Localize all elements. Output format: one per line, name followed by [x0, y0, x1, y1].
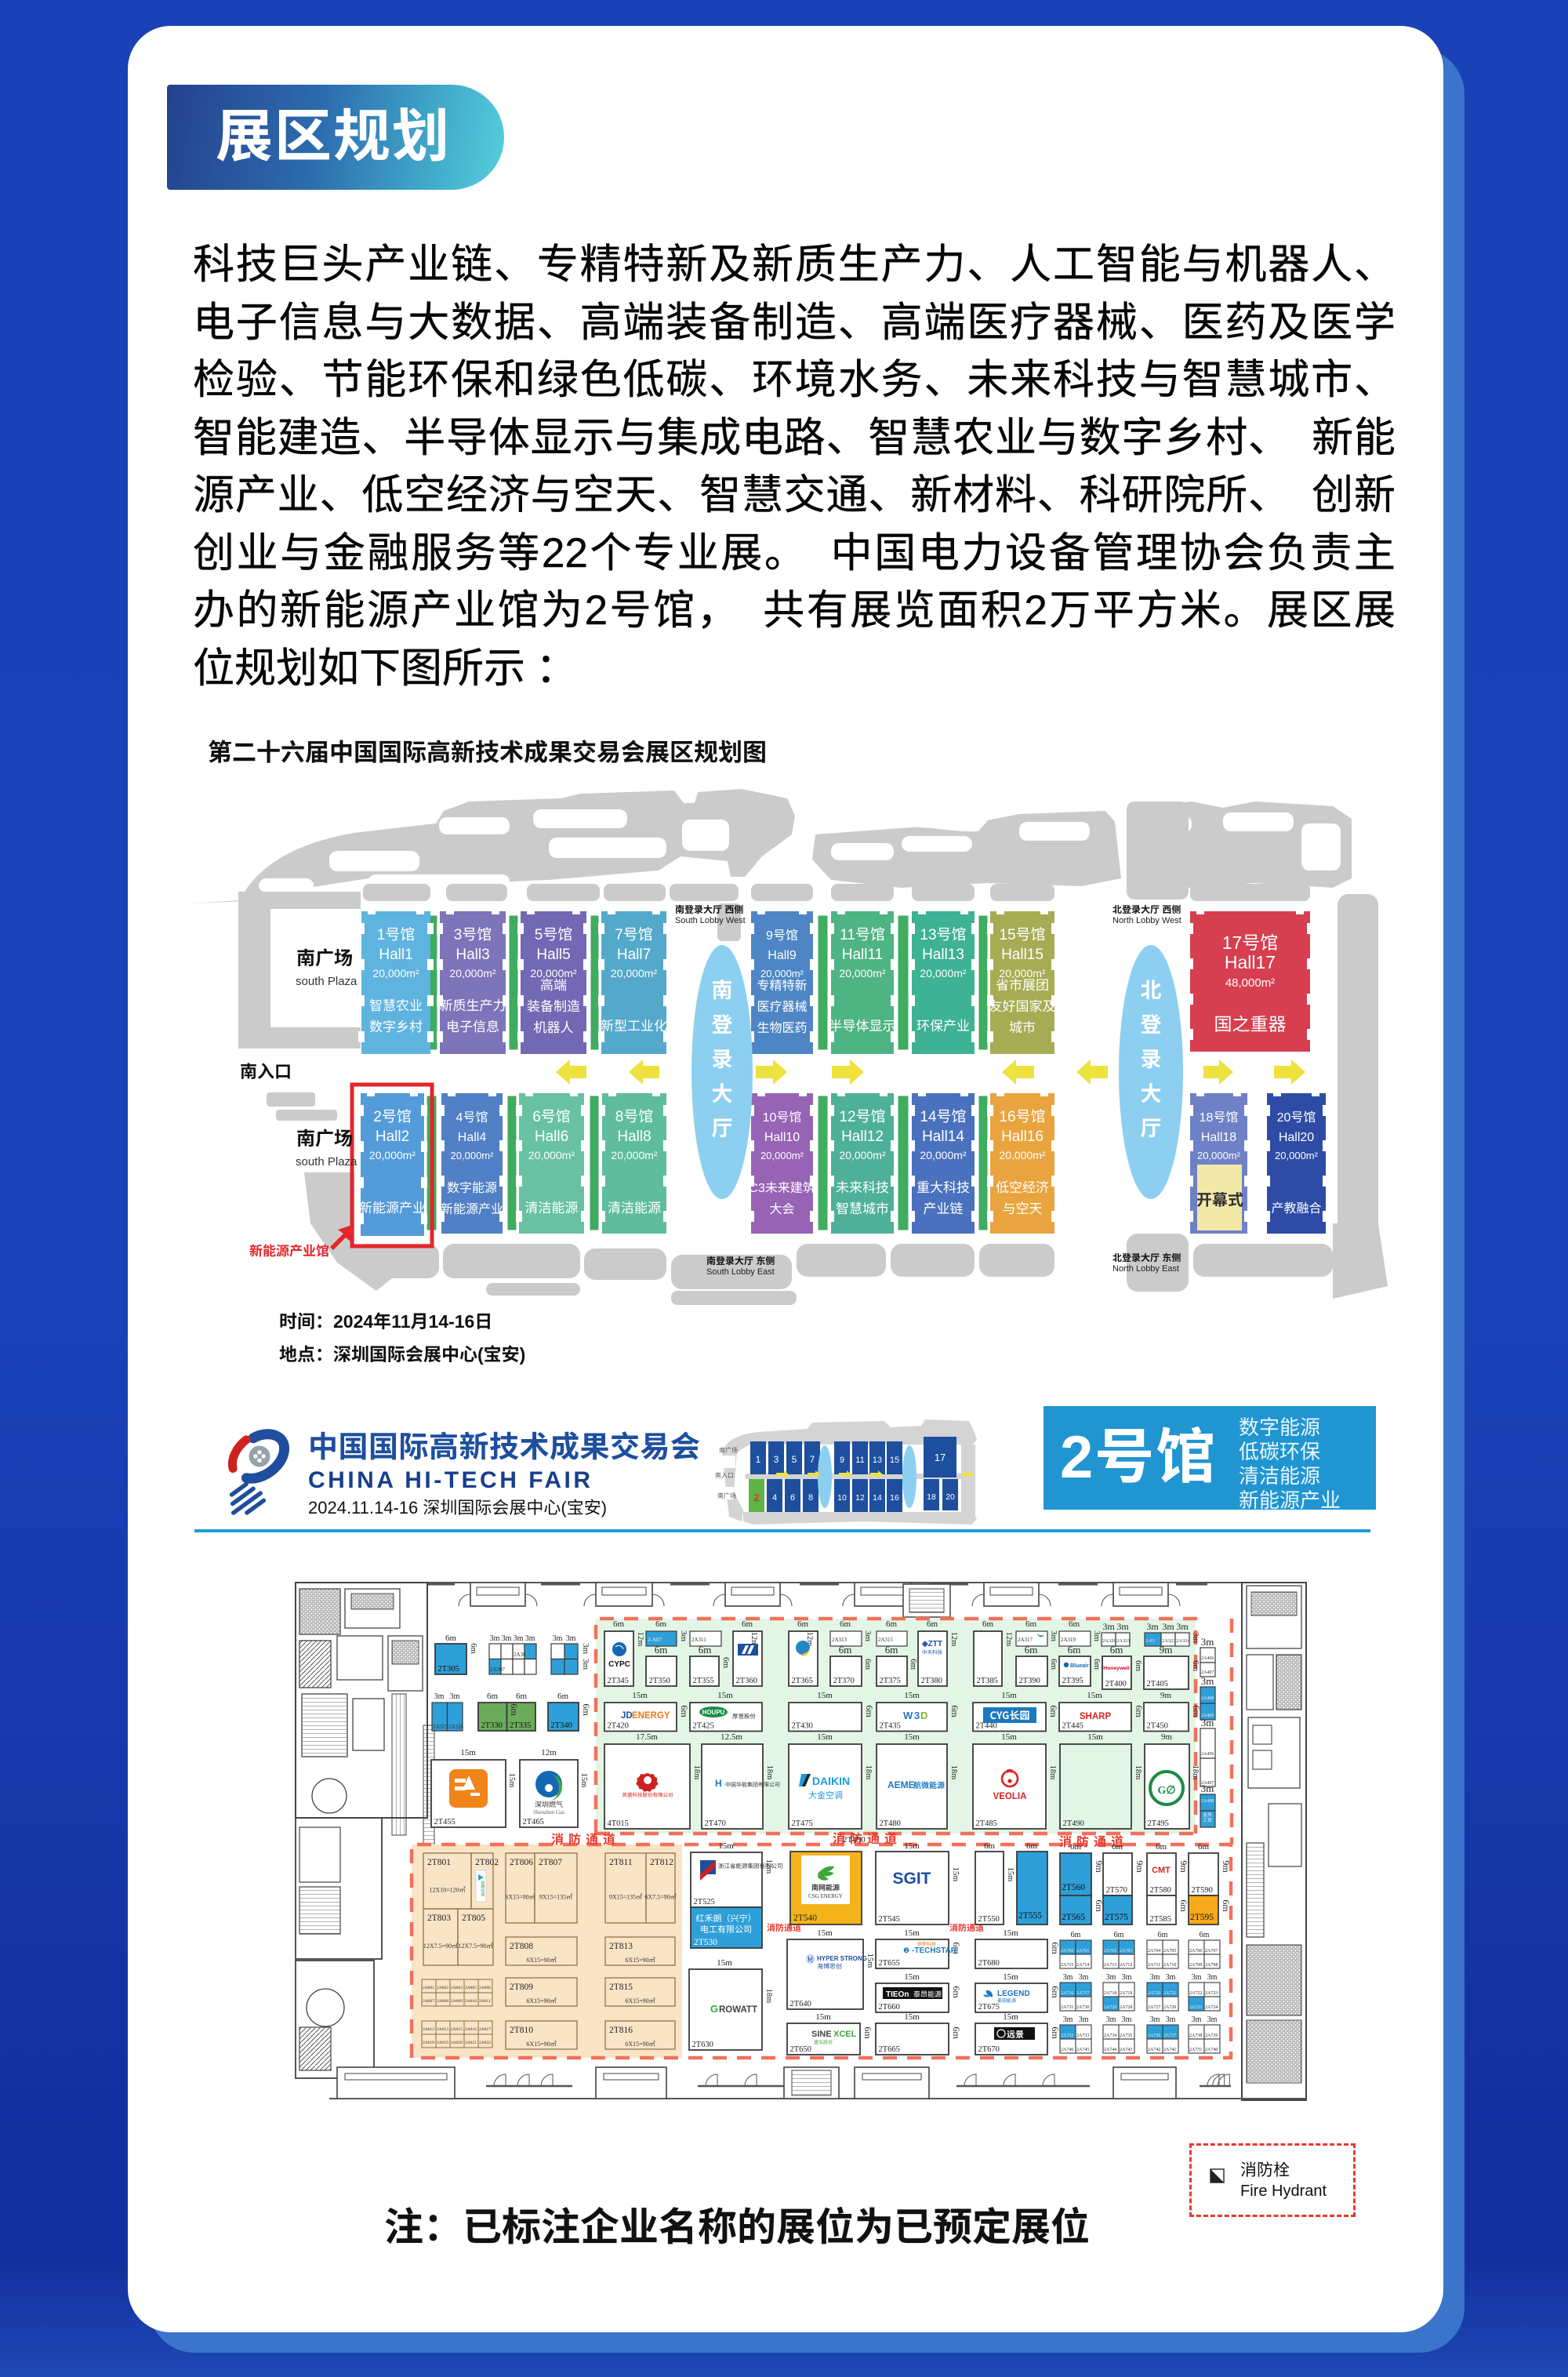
svg-text:2T480: 2T480: [880, 1819, 901, 1828]
svg-text:3m: 3m: [1106, 2015, 1116, 2024]
svg-text:20,000m²: 20,000m²: [1197, 1150, 1241, 1161]
svg-text:2T470: 2T470: [705, 1819, 726, 1828]
svg-text:6X15=90㎡: 6X15=90㎡: [526, 1997, 556, 2004]
svg-text:新型工业化: 新型工业化: [601, 1019, 667, 1034]
svg-text:2A818: 2A818: [423, 2041, 434, 2045]
svg-text:2A811: 2A811: [479, 1999, 491, 2004]
svg-text:2A408: 2A408: [1201, 1696, 1214, 1701]
svg-text:2T811: 2T811: [609, 1858, 633, 1867]
svg-text:2A704: 2A704: [1148, 1949, 1160, 1954]
svg-text:2A731: 2A731: [1189, 2048, 1202, 2052]
svg-text:南网能源: 南网能源: [811, 1882, 840, 1892]
svg-text:6m: 6m: [927, 1619, 938, 1629]
svg-text:2T465: 2T465: [523, 1818, 544, 1826]
svg-text:南广场: 南广场: [717, 1492, 736, 1499]
svg-text:2A711: 2A711: [1148, 1963, 1160, 1968]
svg-text:9X15=135㎡: 9X15=135㎡: [609, 1894, 642, 1901]
svg-text:6m: 6m: [679, 1705, 690, 1717]
svg-text:装备制造: 装备制造: [527, 999, 580, 1014]
svg-text:6m: 6m: [509, 1703, 520, 1716]
svg-text:6m: 6m: [699, 1644, 712, 1656]
svg-text:电子信息: 电子信息: [446, 1019, 499, 1034]
svg-text:航微能源: 航微能源: [913, 1779, 945, 1790]
svg-text:厅: 厅: [1141, 1117, 1162, 1140]
svg-text:2T640: 2T640: [790, 2000, 811, 2008]
svg-text:1: 1: [756, 1454, 761, 1465]
svg-text:9m: 9m: [1178, 1860, 1189, 1873]
svg-text:12X10=120㎡: 12X10=120㎡: [429, 1887, 465, 1894]
svg-text:6m: 6m: [909, 1659, 918, 1670]
svg-text:㊙: ㊙: [806, 1953, 815, 1965]
svg-text:6m: 6m: [1134, 1705, 1145, 1717]
svg-text:3m: 3m: [1162, 1621, 1174, 1632]
svg-text:6m: 6m: [581, 1703, 592, 1716]
svg-text:6m: 6m: [1049, 1659, 1058, 1670]
svg-text:3m: 3m: [1176, 1621, 1189, 1632]
svg-text:6m: 6m: [1025, 1644, 1038, 1656]
svg-text:省市展团: 省市展团: [996, 978, 1049, 993]
svg-text:2T525: 2T525: [694, 1898, 715, 1906]
svg-text:18m: 18m: [1191, 1765, 1200, 1780]
svg-text:2T530: 2T530: [694, 1938, 717, 1947]
svg-text:2T590: 2T590: [1192, 1886, 1213, 1895]
svg-text:2T660: 2T660: [879, 2003, 900, 2012]
svg-text:2T565: 2T565: [1062, 1913, 1085, 1922]
svg-text:凯盛科技股份有限公司: 凯盛科技股份有限公司: [622, 1790, 673, 1798]
svg-text:VEOLIA: VEOLIA: [993, 1792, 1027, 1801]
svg-text:2T555: 2T555: [1018, 1911, 1042, 1921]
svg-text:6m: 6m: [1134, 1660, 1143, 1672]
svg-text:6m: 6m: [886, 1619, 898, 1629]
svg-text:2T680: 2T680: [978, 1959, 1000, 1968]
svg-text:厅: 厅: [712, 1117, 733, 1140]
svg-text:15m: 15m: [951, 1867, 960, 1882]
svg-text:20,000m²: 20,000m²: [611, 967, 657, 980]
svg-text:13号馆: 13号馆: [920, 926, 966, 943]
svg-text:12: 12: [855, 1493, 865, 1503]
svg-text:2A822: 2A822: [479, 2041, 491, 2045]
svg-text:HOUPU: HOUPU: [702, 1709, 725, 1716]
svg-text:6m: 6m: [742, 1619, 753, 1629]
svg-text:2号馆: 2号馆: [373, 1108, 412, 1125]
svg-text:15m: 15m: [904, 1732, 920, 1742]
svg-text:2A712: 2A712: [1120, 1963, 1132, 1968]
svg-text:3m: 3m: [525, 1634, 535, 1643]
svg-text:6X15=90㎡: 6X15=90㎡: [505, 1894, 535, 1901]
svg-text:15m: 15m: [904, 2012, 920, 2022]
svg-text:6m: 6m: [1050, 1986, 1061, 1998]
svg-text:15m: 15m: [1003, 2012, 1018, 2022]
svg-text:3m: 3m: [1192, 1973, 1202, 1982]
svg-text:3m: 3m: [1201, 1717, 1214, 1728]
svg-text:2T345: 2T345: [608, 1677, 629, 1685]
svg-text:2T805: 2T805: [462, 1914, 485, 1923]
svg-text:2A710: 2A710: [1163, 1963, 1176, 1968]
svg-text:TIEOn: TIEOn: [886, 1990, 909, 1999]
svg-text:2A30: 2A30: [514, 1652, 526, 1658]
svg-text:2A810: 2A810: [465, 1999, 477, 2004]
svg-text:2T655: 2T655: [879, 1959, 900, 1968]
svg-text:与空天: 与空天: [1003, 1201, 1043, 1216]
svg-text:2A815: 2A815: [451, 2027, 463, 2032]
svg-text:6号馆: 6号馆: [532, 1108, 571, 1125]
svg-text:6m: 6m: [1112, 1842, 1123, 1852]
svg-text:Hall10: Hall10: [764, 1131, 800, 1144]
svg-text:时间：2024年11月14-16日: 时间：2024年11月14-16日: [279, 1311, 492, 1332]
svg-text:4T015: 4T015: [608, 1819, 629, 1828]
svg-text:6: 6: [790, 1493, 795, 1503]
svg-text:2T630: 2T630: [692, 2041, 713, 2049]
svg-text:半导体显示: 半导体显示: [829, 1019, 896, 1034]
svg-text:2A307: 2A307: [490, 1666, 506, 1673]
svg-text:2T385: 2T385: [977, 1677, 998, 1685]
svg-text:Hall16: Hall16: [1001, 1129, 1044, 1145]
svg-text:6m: 6m: [1156, 1842, 1167, 1852]
svg-text:4号馆: 4号馆: [456, 1110, 488, 1125]
svg-text:9m: 9m: [1161, 1732, 1173, 1742]
svg-text:清洁能源: 清洁能源: [525, 1201, 579, 1216]
svg-text:2T490: 2T490: [843, 1835, 866, 1845]
svg-text:6m: 6m: [655, 1644, 668, 1656]
svg-text:6m: 6m: [863, 1659, 873, 1670]
svg-text:2A738: 2A738: [1189, 2034, 1202, 2038]
svg-text:6m: 6m: [951, 1986, 962, 1998]
svg-text:2T430: 2T430: [792, 1722, 813, 1731]
svg-text:15m: 15m: [717, 1958, 732, 1968]
svg-text:2号馆: 2号馆: [1060, 1424, 1217, 1491]
svg-text:6m: 6m: [885, 1644, 898, 1656]
svg-text:6X15=90㎡: 6X15=90㎡: [526, 1957, 556, 1964]
svg-text:2A718: 2A718: [1104, 1991, 1116, 1996]
svg-text:AEME: AEME: [887, 1779, 915, 1790]
svg-text:6m: 6m: [1026, 1841, 1038, 1851]
svg-text:3m: 3m: [1092, 1630, 1102, 1642]
svg-text:15m: 15m: [815, 2012, 831, 2022]
svg-text:2A801: 2A801: [423, 1986, 434, 1990]
svg-text:6m: 6m: [1050, 2026, 1061, 2039]
svg-text:12m: 12m: [1004, 1632, 1013, 1647]
svg-text:HYPER STRONG: HYPER STRONG: [817, 1955, 867, 1962]
svg-text:20,000m²: 20,000m²: [760, 1150, 804, 1161]
svg-text:3m: 3m: [434, 1692, 445, 1701]
svg-text:17: 17: [935, 1452, 946, 1463]
svg-text:W: W: [903, 1710, 913, 1721]
svg-text:2T801: 2T801: [427, 1858, 451, 1867]
svg-text:2A726: 2A726: [1163, 2005, 1176, 2010]
svg-text:2A816: 2A816: [465, 2027, 477, 2032]
svg-text:北: 北: [1141, 979, 1162, 1002]
svg-text:2A719: 2A719: [1120, 1991, 1132, 1996]
svg-text:15m: 15m: [1087, 1732, 1103, 1742]
svg-text:2A739: 2A739: [1205, 2034, 1218, 2038]
svg-text:2T370: 2T370: [833, 1677, 855, 1685]
svg-text:2A732: 2A732: [1061, 2034, 1073, 2038]
svg-text:中天科技: 中天科技: [922, 1648, 943, 1656]
svg-text:3号馆: 3号馆: [454, 926, 492, 943]
svg-text:消防通道: 消防通道: [551, 1829, 620, 1848]
svg-text:Hall9: Hall9: [768, 949, 797, 962]
svg-text:麦田能源: 麦田能源: [997, 1997, 1016, 2004]
svg-text:7: 7: [810, 1454, 815, 1465]
svg-text:11号馆: 11号馆: [840, 926, 885, 943]
svg-text:6m: 6m: [1050, 1942, 1061, 1954]
svg-text:6m: 6m: [951, 2026, 962, 2039]
svg-text:2T375: 2T375: [880, 1677, 901, 1685]
svg-text:18m: 18m: [1134, 1765, 1142, 1780]
svg-text:CYPC: CYPC: [608, 1660, 630, 1669]
svg-text:2A803: 2A803: [451, 1986, 463, 1990]
svg-text:2A406: 2A406: [1201, 1656, 1214, 1661]
svg-text:2T440: 2T440: [976, 1722, 997, 1731]
svg-text:2A715: 2A715: [1061, 1963, 1073, 1968]
svg-text:20,000m²: 20,000m²: [449, 967, 495, 980]
svg-text:3m: 3m: [450, 1692, 460, 1701]
svg-text:2T425: 2T425: [693, 1722, 714, 1731]
svg-text:2A734: 2A734: [1104, 2034, 1116, 2038]
svg-text:2A705: 2A705: [1163, 1949, 1176, 1954]
svg-text:2T350: 2T350: [649, 1677, 670, 1685]
svg-text:2T813: 2T813: [609, 1942, 633, 1951]
svg-text:20,000m²: 20,000m²: [839, 967, 885, 980]
svg-text:3m: 3m: [502, 1634, 512, 1643]
svg-text:2A819: 2A819: [437, 2041, 448, 2045]
svg-text:2T455: 2T455: [434, 1818, 456, 1826]
svg-text:新质生产力: 新质生产力: [440, 998, 506, 1013]
svg-text:登: 登: [1141, 1013, 1162, 1037]
svg-text:6m: 6m: [1071, 1931, 1081, 1939]
svg-text:6m: 6m: [839, 1644, 852, 1656]
svg-text:C3未来建筑: C3未来建筑: [749, 1181, 815, 1195]
svg-text:2A321: 2A321: [1116, 1638, 1131, 1644]
svg-text:18: 18: [927, 1492, 936, 1502]
svg-text:6m: 6m: [469, 1643, 477, 1653]
svg-text:3m: 3m: [1102, 1621, 1115, 1632]
svg-text:D: D: [920, 1710, 927, 1721]
svg-text:南广场: 南广场: [719, 1447, 738, 1454]
svg-text:ENERGY: ENERGY: [632, 1711, 670, 1721]
svg-text:3m: 3m: [863, 1630, 873, 1642]
svg-text:6m: 6m: [1069, 1619, 1080, 1629]
svg-text:专精特新: 专精特新: [757, 979, 807, 993]
svg-text:2T580: 2T580: [1150, 1886, 1171, 1895]
svg-text:3m: 3m: [1166, 2015, 1176, 2024]
svg-text:17号馆: 17号馆: [1222, 932, 1279, 953]
svg-text:2T650: 2T650: [790, 2045, 811, 2054]
svg-text:6m: 6m: [797, 1619, 809, 1629]
svg-text:North Lobby West: North Lobby West: [1112, 916, 1181, 925]
svg-text:2A717: 2A717: [1076, 1991, 1089, 1996]
svg-text:2T595: 2T595: [1190, 1913, 1214, 1922]
svg-text:生物医药: 生物医药: [757, 1021, 807, 1035]
svg-text:3m: 3m: [1191, 1632, 1200, 1644]
svg-text:6m: 6m: [655, 1619, 667, 1629]
svg-text:9m: 9m: [1221, 1860, 1232, 1873]
svg-text:8: 8: [808, 1493, 813, 1503]
svg-text:18m: 18m: [764, 1989, 773, 2004]
svg-text:South Lobby East: South Lobby East: [706, 1267, 775, 1277]
svg-text:2A313: 2A313: [832, 1637, 848, 1643]
svg-text:第二十六届中国国际高新技术成果交易会展区规划图: 第二十六届中国国际高新技术成果交易会展区规划图: [208, 739, 767, 766]
svg-text:2T365: 2T365: [792, 1677, 813, 1685]
svg-text:15m: 15m: [817, 1732, 833, 1742]
svg-text:2-A07: 2-A07: [648, 1637, 662, 1643]
svg-text:11: 11: [855, 1456, 864, 1465]
svg-text:未来科技: 未来科技: [836, 1180, 889, 1195]
svg-text:Hall11: Hall11: [842, 947, 883, 963]
svg-text:6m: 6m: [1191, 1660, 1200, 1672]
svg-text:15m: 15m: [1087, 1691, 1102, 1700]
svg-text:数字能源: 数字能源: [1239, 1416, 1320, 1439]
svg-text:3m: 3m: [1150, 2015, 1160, 2024]
svg-text:2A809: 2A809: [451, 1999, 463, 2004]
svg-text:2T400: 2T400: [1105, 1680, 1127, 1688]
svg-text:3m: 3m: [1063, 2015, 1073, 2024]
svg-text:15m: 15m: [817, 1691, 833, 1700]
svg-text:2A741: 2A741: [1163, 2048, 1176, 2052]
svg-text:2T380: 2T380: [921, 1677, 942, 1685]
svg-text:2T390: 2T390: [1019, 1677, 1040, 1685]
svg-text:48,000m²: 48,000m²: [1225, 976, 1275, 990]
svg-text:Hall7: Hall7: [617, 947, 651, 963]
svg-text:Hall4: Hall4: [458, 1131, 487, 1144]
svg-text:6m: 6m: [1158, 1931, 1168, 1939]
svg-text:录: 录: [1141, 1048, 1162, 1071]
svg-text:2T445: 2T445: [1062, 1722, 1083, 1731]
svg-text:2A323: 2A323: [1162, 1638, 1176, 1644]
svg-text:south Plaza: south Plaza: [296, 975, 358, 988]
svg-text:6m: 6m: [721, 1657, 731, 1669]
svg-text:新能源产业: 新能源产业: [441, 1202, 503, 1216]
svg-text:Hall17: Hall17: [1225, 952, 1276, 972]
svg-text:2T495: 2T495: [1148, 1819, 1169, 1828]
svg-text:2A746: 2A746: [1061, 2048, 1073, 2052]
svg-text:2T810: 2T810: [510, 2026, 533, 2035]
svg-text:2A820: 2A820: [451, 2041, 463, 2045]
svg-text:2T570: 2T570: [1106, 1886, 1127, 1895]
svg-text:产教融合: 产教融合: [1271, 1201, 1321, 1216]
svg-text:2T808: 2T808: [510, 1942, 533, 1951]
svg-text:大会: 大会: [769, 1202, 794, 1216]
svg-text:友好国家及: 友好国家及: [989, 999, 1056, 1014]
svg-text:北登录大厅 西侧: 北登录大厅 西侧: [1112, 904, 1181, 915]
svg-text:2A709: 2A709: [1189, 1963, 1202, 1968]
svg-text:重大科技: 重大科技: [916, 1180, 970, 1195]
svg-text:高端: 高端: [540, 978, 567, 993]
svg-text:盛弘股份: 盛弘股份: [814, 2038, 833, 2045]
svg-text:2T435: 2T435: [880, 1722, 901, 1731]
svg-text:10: 10: [837, 1493, 847, 1503]
svg-text:2A721: 2A721: [1163, 1991, 1176, 1996]
svg-text:3m: 3m: [1116, 1621, 1129, 1632]
svg-text:3m: 3m: [553, 1634, 563, 1643]
svg-text:登: 登: [712, 1013, 733, 1037]
svg-text:20,000m²: 20,000m²: [920, 1149, 966, 1161]
svg-text:2A317: 2A317: [1018, 1637, 1033, 1643]
svg-text:Hall3: Hall3: [456, 947, 489, 963]
svg-text:3: 3: [774, 1454, 779, 1465]
svg-text:2A326: 2A326: [448, 1724, 464, 1730]
svg-text:3m: 3m: [1192, 2015, 1202, 2024]
svg-text:清洁能源: 清洁能源: [608, 1201, 661, 1216]
svg-text:2T812: 2T812: [650, 1858, 673, 1867]
svg-text:2A496: 2A496: [1201, 1752, 1214, 1757]
svg-text:数字乡村: 数字乡村: [369, 1019, 423, 1034]
svg-text:2T340: 2T340: [551, 1721, 572, 1730]
svg-text:智慧城市: 智慧城市: [836, 1201, 889, 1216]
svg-text:2T675: 2T675: [978, 2003, 1000, 2012]
svg-text:远景: 远景: [1007, 2028, 1024, 2041]
svg-text:3m: 3m: [581, 1643, 590, 1655]
svg-text:6m: 6m: [982, 1619, 994, 1629]
svg-text:录: 录: [712, 1048, 733, 1071]
svg-text:恒荣科技: 恒荣科技: [917, 1940, 936, 1947]
svg-text:2A701: 2A701: [1076, 1949, 1089, 1954]
svg-text:2A320: 2A320: [1102, 1638, 1116, 1644]
svg-text:3m: 3m: [1207, 1973, 1218, 1982]
svg-text:2T330: 2T330: [481, 1721, 503, 1730]
svg-text:2T305: 2T305: [438, 1665, 459, 1674]
svg-text:12m: 12m: [636, 1632, 644, 1647]
svg-text:Hall15: Hall15: [1001, 947, 1044, 963]
svg-text:2A731: 2A731: [1061, 2005, 1073, 2010]
svg-text:新能源产业馆: 新能源产业馆: [249, 1244, 329, 1259]
svg-text:南: 南: [712, 979, 733, 1002]
svg-text:南入口: 南入口: [240, 1062, 292, 1081]
svg-text:2A325: 2A325: [433, 1724, 448, 1730]
svg-text:XCEL: XCEL: [833, 2030, 857, 2039]
svg-text:地点：深圳国际会展中心(宝安): 地点：深圳国际会展中心(宝安): [279, 1344, 525, 1365]
svg-text:北登录大厅 东侧: 北登录大厅 东侧: [1112, 1252, 1181, 1263]
svg-text:3m: 3m: [581, 1659, 590, 1670]
svg-text:15m: 15m: [718, 1841, 734, 1851]
svg-text:G∅: G∅: [1157, 1785, 1175, 1797]
svg-text:12号馆: 12号馆: [839, 1108, 885, 1125]
svg-text:3m: 3m: [514, 1634, 524, 1643]
svg-text:南登录大厅 西侧: 南登录大厅 西侧: [675, 904, 743, 915]
svg-text:9X15=135㎡: 9X15=135㎡: [539, 1894, 572, 1901]
svg-text:6m: 6m: [445, 1634, 457, 1643]
svg-text:2A743: 2A743: [1120, 2048, 1132, 2052]
svg-text:20,000m²: 20,000m²: [528, 1149, 575, 1161]
svg-text:CHINA HI-TECH FAIR: CHINA HI-TECH FAIR: [308, 1467, 593, 1493]
svg-text:20: 20: [946, 1492, 955, 1502]
svg-text:2-03: 2-03: [1145, 1638, 1155, 1644]
svg-text:3m: 3m: [1079, 2015, 1089, 2024]
svg-text:2A808: 2A808: [437, 1999, 448, 2004]
svg-text:2T806: 2T806: [510, 1858, 533, 1867]
svg-text:Hall13: Hall13: [922, 947, 964, 963]
svg-text:消防栓: 消防栓: [1240, 2161, 1290, 2179]
svg-text:2A498: 2A498: [1201, 1799, 1214, 1804]
svg-text:2A708: 2A708: [1205, 1963, 1218, 1968]
svg-text:中国国际高新技术成果交易会: 中国国际高新技术成果交易会: [308, 1431, 701, 1464]
svg-text:2T802: 2T802: [475, 1858, 499, 1867]
svg-text:3m: 3m: [566, 1634, 576, 1643]
svg-text:2A737: 2A737: [1163, 2034, 1176, 2038]
svg-text:3m: 3m: [1201, 1675, 1214, 1687]
svg-text:CSG ENERGY: CSG ENERGY: [808, 1893, 843, 1899]
svg-text:2T807: 2T807: [539, 1858, 562, 1867]
svg-text:2T575: 2T575: [1105, 1913, 1128, 1922]
svg-text:14号馆: 14号馆: [920, 1108, 966, 1125]
svg-text:2A315: 2A315: [878, 1637, 894, 1643]
svg-text:2A714: 2A714: [1076, 1963, 1089, 1968]
svg-text:南广场: 南广场: [296, 1129, 353, 1150]
svg-text:15m: 15m: [1001, 1691, 1017, 1700]
svg-text:6m: 6m: [1025, 1619, 1037, 1629]
svg-text:3m: 3m: [1063, 1973, 1073, 1982]
svg-text:2A735: 2A735: [1120, 2034, 1132, 2038]
